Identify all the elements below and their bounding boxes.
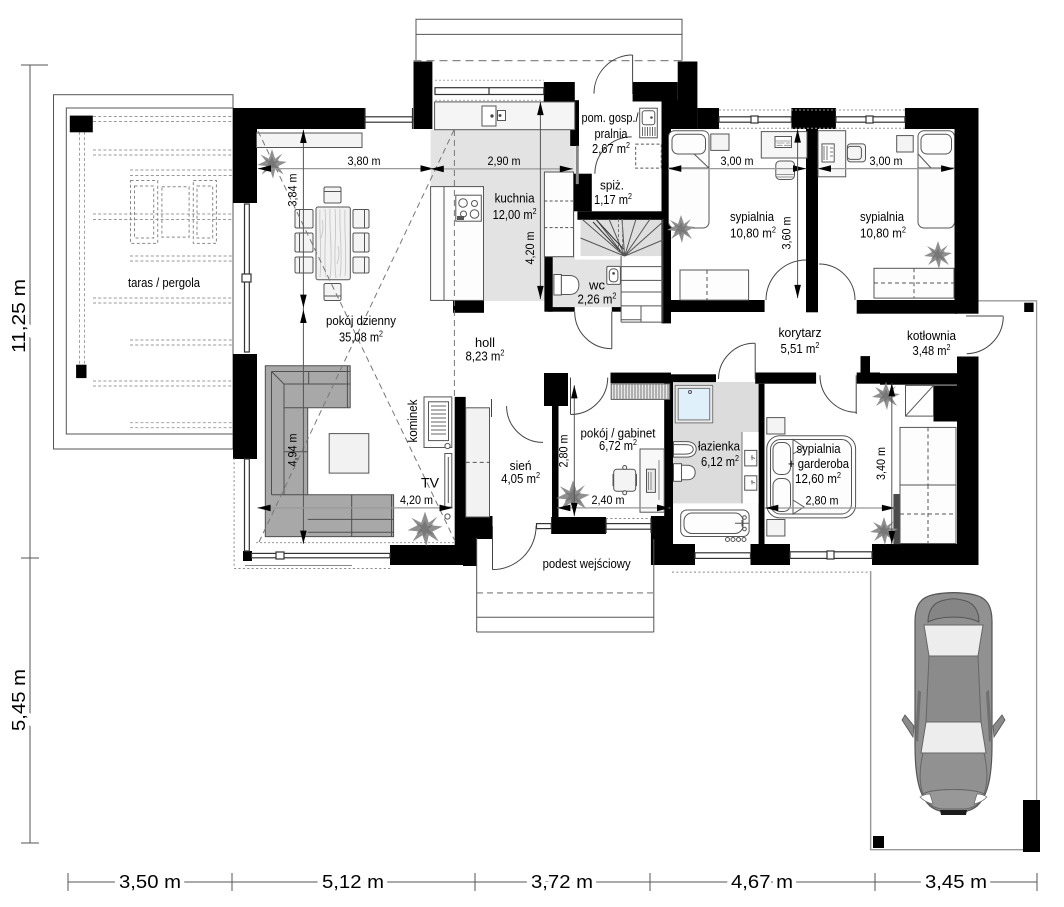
svg-text:łazienka: łazienka	[698, 439, 740, 453]
svg-text:4,94 m: 4,94 m	[288, 434, 300, 467]
svg-text:kuchnia: kuchnia	[495, 192, 535, 206]
svg-text:sypialnia: sypialnia	[730, 210, 774, 224]
svg-text:kotłownia: kotłownia	[907, 329, 956, 343]
svg-text:12,00 m2: 12,00 m2	[493, 207, 537, 222]
svg-text:3,72 m: 3,72 m	[531, 872, 593, 892]
svg-text:TV: TV	[421, 476, 439, 491]
svg-text:2,80 m: 2,80 m	[558, 435, 570, 468]
svg-text:4,20 m: 4,20 m	[525, 232, 537, 265]
svg-text:6,72 m2: 6,72 m2	[599, 438, 637, 453]
svg-text:2,26 m2: 2,26 m2	[578, 291, 617, 306]
svg-text:3,48 m2: 3,48 m2	[913, 343, 951, 358]
svg-text:pom. gosp./: pom. gosp./	[582, 111, 639, 125]
svg-text:6,12 m2: 6,12 m2	[701, 454, 739, 469]
svg-text:5,51 m2: 5,51 m2	[781, 341, 820, 356]
svg-text:4,05 m2: 4,05 m2	[501, 471, 540, 486]
svg-text:kominek: kominek	[406, 399, 420, 443]
svg-text:3,00 m: 3,00 m	[870, 156, 903, 168]
svg-text:pralnia: pralnia	[595, 127, 628, 141]
svg-text:4,20 m: 4,20 m	[400, 495, 433, 507]
svg-text:sień: sień	[510, 459, 532, 473]
svg-text:2,90 m: 2,90 m	[488, 156, 521, 168]
svg-text:3,60 m: 3,60 m	[782, 217, 794, 250]
svg-text:2,80 m: 2,80 m	[806, 495, 839, 507]
svg-text:10,80 m2: 10,80 m2	[860, 226, 907, 241]
svg-text:5,45 m: 5,45 m	[9, 669, 29, 731]
svg-text:taras / pergola: taras / pergola	[128, 276, 200, 290]
svg-text:pokój dzienny: pokój dzienny	[326, 314, 397, 328]
svg-text:3,80 m: 3,80 m	[348, 156, 381, 168]
svg-text:holl: holl	[475, 336, 495, 350]
svg-text:8,23 m2: 8,23 m2	[466, 349, 505, 364]
svg-text:3,45 m: 3,45 m	[925, 872, 987, 892]
svg-text:3,50 m: 3,50 m	[119, 872, 181, 892]
svg-text:3,00 m: 3,00 m	[721, 156, 754, 168]
svg-text:sypialnia: sypialnia	[797, 442, 841, 456]
svg-text:wc: wc	[588, 279, 605, 293]
svg-text:2,40 m: 2,40 m	[592, 495, 625, 507]
svg-text:1,17 m2: 1,17 m2	[594, 192, 632, 207]
svg-text:korytarz: korytarz	[779, 326, 822, 340]
svg-text:12,60 m2: 12,60 m2	[795, 471, 842, 486]
svg-text:+ garderoba: + garderoba	[788, 457, 849, 471]
svg-text:spiż.: spiż.	[600, 179, 624, 193]
svg-text:10,80 m2: 10,80 m2	[730, 226, 777, 241]
svg-text:2,67 m2: 2,67 m2	[592, 141, 630, 156]
svg-text:sypialnia: sypialnia	[860, 210, 904, 224]
svg-text:35,08 m2: 35,08 m2	[339, 330, 383, 345]
svg-text:3,84 m: 3,84 m	[288, 174, 300, 207]
svg-text:podest wejściowy: podest wejściowy	[543, 557, 632, 571]
svg-text:5,12 m: 5,12 m	[322, 872, 384, 892]
svg-text:4,67 m: 4,67 m	[731, 872, 793, 892]
svg-text:11,25 m: 11,25 m	[9, 279, 29, 353]
svg-text:3,40 m: 3,40 m	[876, 447, 888, 480]
